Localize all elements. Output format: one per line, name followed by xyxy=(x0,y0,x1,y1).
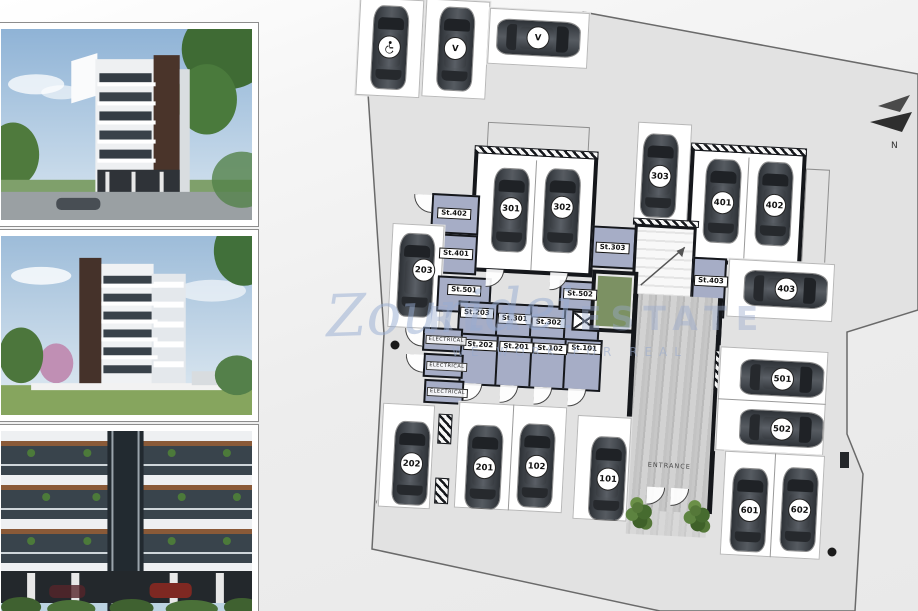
wall-hatched xyxy=(437,414,453,445)
storage-label: St.301 xyxy=(498,313,532,326)
listing-sheet: N V V 301 302 303 xyxy=(0,0,918,611)
building-render-image-2 xyxy=(1,236,252,415)
building-render-panel-2 xyxy=(0,229,259,422)
storage-label: St.501 xyxy=(447,284,481,297)
storage-label: St.502 xyxy=(563,288,597,301)
storage-label: St.403 xyxy=(694,275,728,288)
storage-label: St.203 xyxy=(460,307,494,320)
storage-label: St.201 xyxy=(499,341,533,354)
entrance-corridor xyxy=(627,294,718,514)
door-arc xyxy=(533,387,552,406)
door-arc xyxy=(485,269,504,288)
north-label: N xyxy=(891,141,898,151)
building-render-image-3 xyxy=(1,431,252,611)
door-arc xyxy=(405,354,424,373)
storage-label: St.101 xyxy=(567,342,601,355)
storage-label: St.102 xyxy=(533,342,567,355)
door-arc xyxy=(499,385,518,404)
door-arc xyxy=(413,194,432,213)
door-arc xyxy=(567,388,586,407)
building-render-panel-1 xyxy=(0,22,259,227)
wall-hatched xyxy=(434,478,449,505)
wall-stub xyxy=(840,452,849,468)
storage-label: St.401 xyxy=(439,247,473,260)
porch-outline xyxy=(801,169,830,266)
storage-label: St.303 xyxy=(595,242,629,255)
parking-floor-plan: V V 301 302 303 401 402 St.402 St.401 xyxy=(353,82,847,586)
storage-label: St.302 xyxy=(531,316,565,329)
staircase xyxy=(631,224,697,301)
storage-label: St.402 xyxy=(437,207,471,220)
storage-label: St.202 xyxy=(463,339,497,352)
building-render-panel-3 xyxy=(0,424,259,611)
building-render-image-1 xyxy=(1,29,252,220)
door-arc xyxy=(404,328,423,347)
column-dot xyxy=(828,548,837,557)
